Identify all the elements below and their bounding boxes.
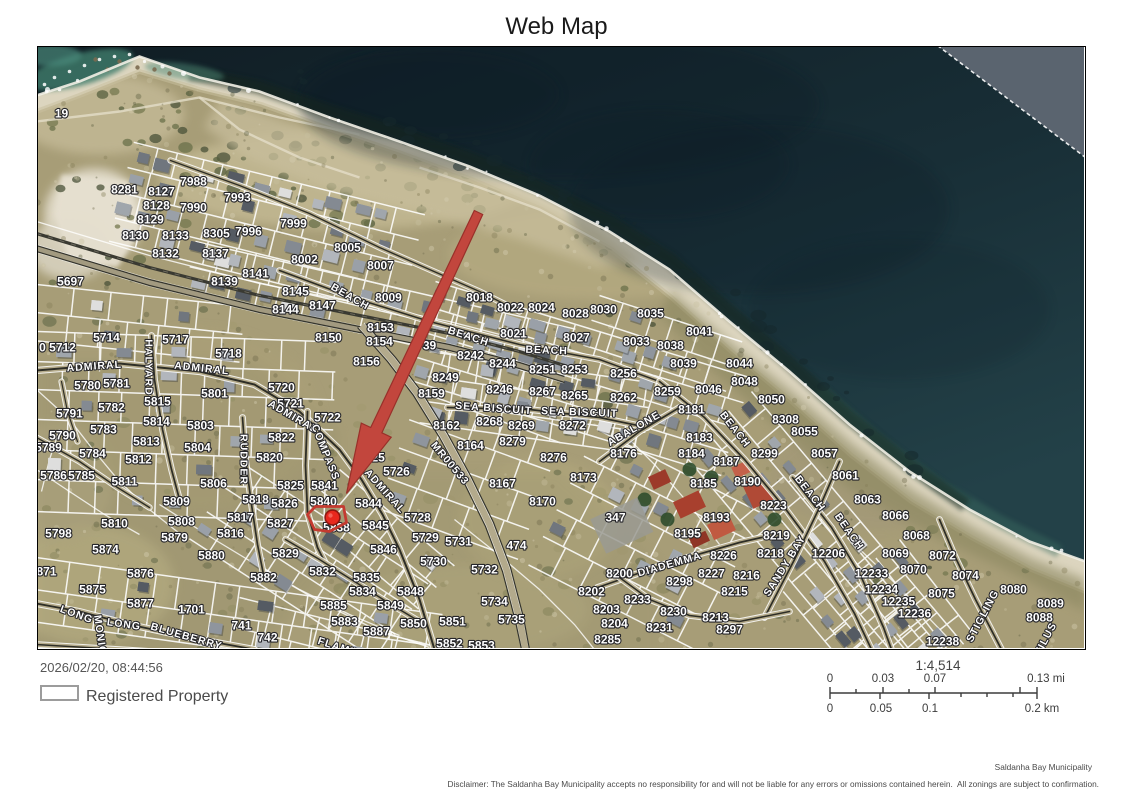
svg-text:474: 474: [506, 539, 526, 553]
svg-text:8183: 8183: [686, 431, 713, 445]
svg-text:5882: 5882: [250, 571, 277, 585]
svg-text:HALYARD: HALYARD: [143, 339, 155, 395]
svg-text:12236: 12236: [898, 607, 932, 621]
svg-text:5732: 5732: [471, 563, 498, 577]
svg-text:5822: 5822: [268, 431, 295, 445]
svg-text:8297: 8297: [716, 623, 743, 637]
svg-text:8130: 8130: [122, 229, 149, 243]
svg-text:5829: 5829: [272, 547, 299, 561]
svg-text:8132: 8132: [152, 247, 179, 261]
svg-text:5803: 5803: [187, 419, 214, 433]
svg-text:5816: 5816: [217, 527, 244, 541]
svg-text:8063: 8063: [854, 493, 881, 507]
svg-text:8024: 8024: [528, 301, 555, 315]
svg-text:5735: 5735: [498, 613, 525, 627]
svg-text:8005: 8005: [334, 241, 361, 255]
svg-text:5808: 5808: [168, 515, 195, 529]
svg-text:5875: 5875: [79, 583, 106, 597]
svg-text:0: 0: [827, 703, 833, 715]
svg-text:5785: 5785: [68, 469, 95, 483]
svg-text:8246: 8246: [486, 383, 513, 397]
svg-text:8184: 8184: [678, 447, 705, 461]
svg-text:8018: 8018: [466, 291, 493, 305]
svg-text:8133: 8133: [162, 229, 189, 243]
svg-text:5791: 5791: [56, 407, 83, 421]
svg-text:19: 19: [55, 107, 69, 121]
svg-text:5714: 5714: [93, 331, 120, 345]
svg-text:5813: 5813: [133, 435, 160, 449]
svg-text:5815: 5815: [144, 395, 171, 409]
svg-text:0: 0: [827, 673, 833, 685]
svg-text:8244: 8244: [489, 357, 516, 371]
svg-text:8281: 8281: [111, 183, 138, 197]
svg-text:12233: 12233: [855, 567, 889, 581]
svg-text:5834: 5834: [349, 585, 376, 599]
svg-text:8267: 8267: [529, 385, 556, 399]
svg-text:5880: 5880: [198, 549, 225, 563]
svg-text:8046: 8046: [695, 383, 722, 397]
svg-text:8272: 8272: [559, 419, 586, 433]
svg-text:5734: 5734: [481, 595, 508, 609]
svg-text:8154: 8154: [366, 335, 393, 349]
svg-text:5780: 5780: [74, 379, 101, 393]
svg-text:8227: 8227: [698, 567, 725, 581]
svg-text:8055: 8055: [791, 425, 818, 439]
svg-text:5810: 5810: [101, 517, 128, 531]
svg-text:5814: 5814: [143, 415, 170, 429]
svg-text:8027: 8027: [563, 331, 590, 345]
svg-text:741: 741: [231, 619, 251, 633]
svg-text:8187: 8187: [713, 455, 740, 469]
svg-text:8200: 8200: [606, 567, 633, 581]
svg-text:8022: 8022: [497, 301, 524, 315]
svg-text:5811: 5811: [111, 475, 137, 489]
svg-text:5850: 5850: [400, 617, 427, 631]
svg-text:5848: 5848: [397, 585, 424, 599]
svg-text:5827: 5827: [267, 517, 294, 531]
svg-text:8144: 8144: [272, 303, 299, 317]
svg-text:0.13 mi: 0.13 mi: [1027, 673, 1065, 685]
svg-text:8044: 8044: [726, 357, 753, 371]
svg-text:8061: 8061: [832, 469, 859, 483]
svg-text:8041: 8041: [686, 325, 713, 339]
svg-text:8218: 8218: [757, 547, 784, 561]
svg-text:8226: 8226: [710, 549, 737, 563]
svg-text:5883: 5883: [331, 615, 358, 629]
svg-text:5820: 5820: [256, 451, 283, 465]
svg-text:5885: 5885: [320, 599, 347, 613]
svg-text:5720: 5720: [268, 381, 295, 395]
svg-text:8190: 8190: [734, 475, 761, 489]
svg-text:8150: 8150: [315, 331, 342, 345]
svg-text:5784: 5784: [79, 447, 106, 461]
svg-text:8137: 8137: [202, 247, 229, 261]
svg-text:8030: 8030: [590, 303, 617, 317]
svg-text:8230: 8230: [660, 605, 687, 619]
svg-text:7999: 7999: [280, 217, 307, 231]
svg-text:5729: 5729: [412, 531, 439, 545]
svg-text:0.03: 0.03: [872, 673, 894, 685]
svg-text:8009: 8009: [375, 291, 402, 305]
svg-text:5849: 5849: [377, 599, 404, 613]
svg-text:5789: 5789: [38, 441, 62, 455]
svg-text:1701: 1701: [178, 603, 205, 617]
svg-text:8039: 8039: [670, 357, 697, 371]
svg-text:8249: 8249: [432, 371, 459, 385]
svg-text:8070: 8070: [900, 563, 927, 577]
svg-text:5845: 5845: [362, 519, 389, 533]
svg-text:0 5712: 0 5712: [39, 341, 76, 355]
svg-text:8068: 8068: [903, 529, 930, 543]
svg-text:12238: 12238: [926, 635, 960, 649]
svg-text:8202: 8202: [578, 585, 605, 599]
svg-text:8223: 8223: [760, 499, 787, 513]
svg-text:8075: 8075: [928, 587, 955, 601]
svg-text:8080: 8080: [1000, 583, 1027, 597]
svg-text:5726: 5726: [383, 465, 410, 479]
svg-text:5809: 5809: [163, 495, 190, 509]
svg-text:8069: 8069: [882, 547, 909, 561]
svg-text:8251: 8251: [529, 363, 556, 377]
svg-text:5804: 5804: [184, 441, 211, 455]
svg-text:5832: 5832: [309, 565, 336, 579]
svg-text:8265: 8265: [561, 389, 588, 403]
svg-text:8159: 8159: [418, 387, 445, 401]
svg-text:8276: 8276: [540, 451, 567, 465]
svg-text:8007: 8007: [367, 259, 394, 273]
svg-text:5887: 5887: [363, 625, 390, 639]
svg-text:5730: 5730: [420, 555, 447, 569]
svg-text:8089: 8089: [1037, 597, 1064, 611]
svg-text:7988: 7988: [180, 175, 207, 189]
svg-text:5717: 5717: [162, 333, 189, 347]
svg-text:5851: 5851: [439, 615, 466, 629]
svg-text:5844: 5844: [355, 497, 382, 511]
svg-text:8219: 8219: [763, 529, 790, 543]
svg-text:8204: 8204: [601, 617, 628, 631]
svg-text:8021: 8021: [500, 327, 527, 341]
svg-text:8033: 8033: [623, 335, 650, 349]
svg-text:5801: 5801: [201, 387, 228, 401]
svg-text:5817: 5817: [227, 511, 254, 525]
svg-text:8305: 8305: [203, 227, 230, 241]
svg-text:5853: 5853: [468, 639, 495, 649]
svg-text:8253: 8253: [561, 363, 588, 377]
svg-text:7993: 7993: [224, 191, 251, 205]
svg-text:8048: 8048: [731, 375, 758, 389]
svg-text:8139: 8139: [211, 275, 238, 289]
svg-text:8259: 8259: [654, 385, 681, 399]
svg-text:8035: 8035: [637, 307, 664, 321]
svg-text:8028: 8028: [562, 307, 589, 321]
svg-text:8298: 8298: [666, 575, 693, 589]
svg-text:5818: 5818: [242, 493, 269, 507]
svg-text:8074: 8074: [952, 569, 979, 583]
svg-text:8127: 8127: [148, 185, 175, 199]
svg-text:8128: 8128: [143, 199, 170, 213]
svg-text:8050: 8050: [758, 393, 785, 407]
svg-text:5874: 5874: [92, 543, 119, 557]
svg-text:5781: 5781: [103, 377, 130, 391]
svg-text:347: 347: [605, 511, 625, 525]
svg-text:5846: 5846: [370, 543, 397, 557]
svg-text:8038: 8038: [657, 339, 684, 353]
svg-text:RUDDER: RUDDER: [238, 434, 250, 485]
svg-text:8268: 8268: [476, 415, 503, 429]
svg-text:8129: 8129: [137, 213, 164, 227]
svg-text:5825: 5825: [277, 479, 304, 493]
svg-text:8141: 8141: [242, 267, 269, 281]
svg-text:5798: 5798: [45, 527, 72, 541]
svg-text:5731: 5731: [445, 535, 472, 549]
svg-text:0.1: 0.1: [922, 703, 938, 715]
svg-text:742: 742: [257, 631, 277, 645]
svg-text:5782: 5782: [98, 401, 125, 415]
svg-text:8242: 8242: [457, 349, 484, 363]
svg-text:5806: 5806: [200, 477, 227, 491]
svg-text:5852: 5852: [436, 637, 463, 649]
svg-text:8057: 8057: [811, 447, 838, 461]
svg-text:8285: 8285: [594, 633, 621, 647]
svg-text:8233: 8233: [624, 593, 651, 607]
svg-text:8193: 8193: [703, 511, 730, 525]
svg-text:871: 871: [38, 565, 57, 579]
svg-text:8153: 8153: [367, 321, 394, 335]
svg-text:0.07: 0.07: [924, 673, 946, 685]
svg-text:8066: 8066: [882, 509, 909, 523]
svg-text:5879: 5879: [161, 531, 188, 545]
svg-text:5835: 5835: [353, 571, 380, 585]
svg-text:8262: 8262: [610, 391, 637, 405]
svg-text:8195: 8195: [674, 527, 701, 541]
svg-text:5826: 5826: [271, 497, 298, 511]
svg-text:8162: 8162: [433, 419, 460, 433]
svg-text:5728: 5728: [404, 511, 431, 525]
svg-text:7996: 7996: [235, 225, 262, 239]
svg-text:5786: 5786: [40, 469, 67, 483]
svg-text:5876: 5876: [127, 567, 154, 581]
svg-text:8231: 8231: [646, 621, 673, 635]
svg-text:8170: 8170: [529, 495, 556, 509]
svg-text:5812: 5812: [125, 453, 152, 467]
svg-text:8279: 8279: [499, 435, 526, 449]
svg-text:8156: 8156: [353, 355, 380, 369]
svg-text:8181: 8181: [678, 403, 705, 417]
svg-text:8216: 8216: [733, 569, 760, 583]
svg-text:8167: 8167: [489, 477, 516, 491]
svg-text:8185: 8185: [690, 477, 717, 491]
svg-text:8173: 8173: [570, 471, 597, 485]
svg-text:5783: 5783: [90, 423, 117, 437]
svg-text:8269: 8269: [508, 419, 535, 433]
svg-text:8203: 8203: [593, 603, 620, 617]
svg-text:0.2 km: 0.2 km: [1025, 703, 1060, 715]
svg-text:8299: 8299: [751, 447, 778, 461]
svg-text:BEACH: BEACH: [525, 344, 568, 357]
svg-text:8215: 8215: [721, 585, 748, 599]
svg-text:8147: 8147: [309, 299, 336, 313]
svg-text:8176: 8176: [610, 447, 637, 461]
svg-text:8145: 8145: [282, 285, 309, 299]
svg-text:5718: 5718: [215, 347, 242, 361]
svg-text:8256: 8256: [610, 367, 637, 381]
svg-text:5697: 5697: [57, 275, 84, 289]
svg-text:12206: 12206: [812, 547, 846, 561]
svg-text:8164: 8164: [457, 439, 484, 453]
svg-text:8002: 8002: [291, 253, 318, 267]
svg-text:7990: 7990: [180, 201, 207, 215]
svg-text:5877: 5877: [127, 597, 154, 611]
svg-text:8072: 8072: [929, 549, 956, 563]
svg-text:0.05: 0.05: [870, 703, 892, 715]
